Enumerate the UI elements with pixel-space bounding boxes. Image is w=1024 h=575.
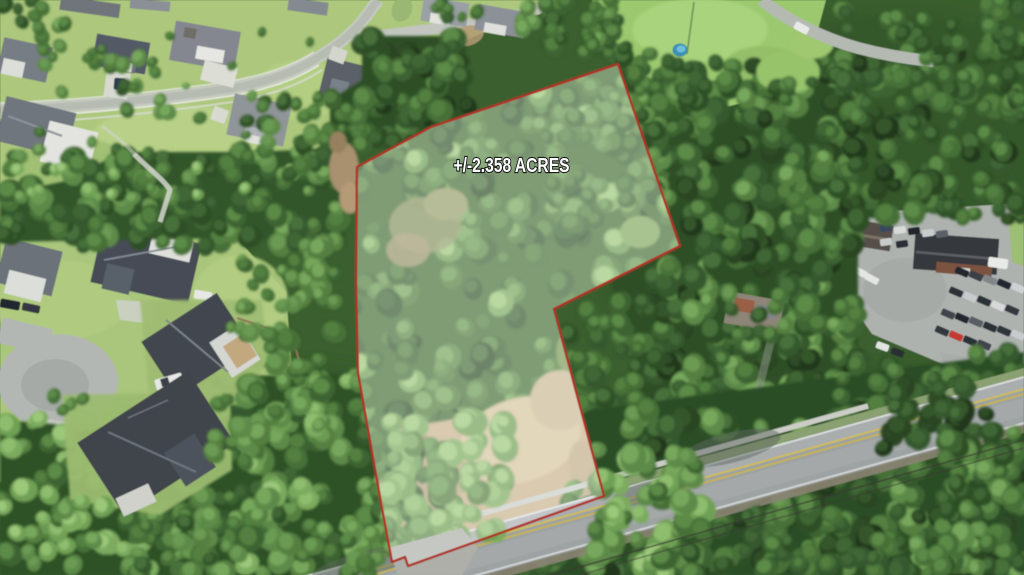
svg-text:+/-2.358 ACRES: +/-2.358 ACRES [454, 154, 570, 177]
